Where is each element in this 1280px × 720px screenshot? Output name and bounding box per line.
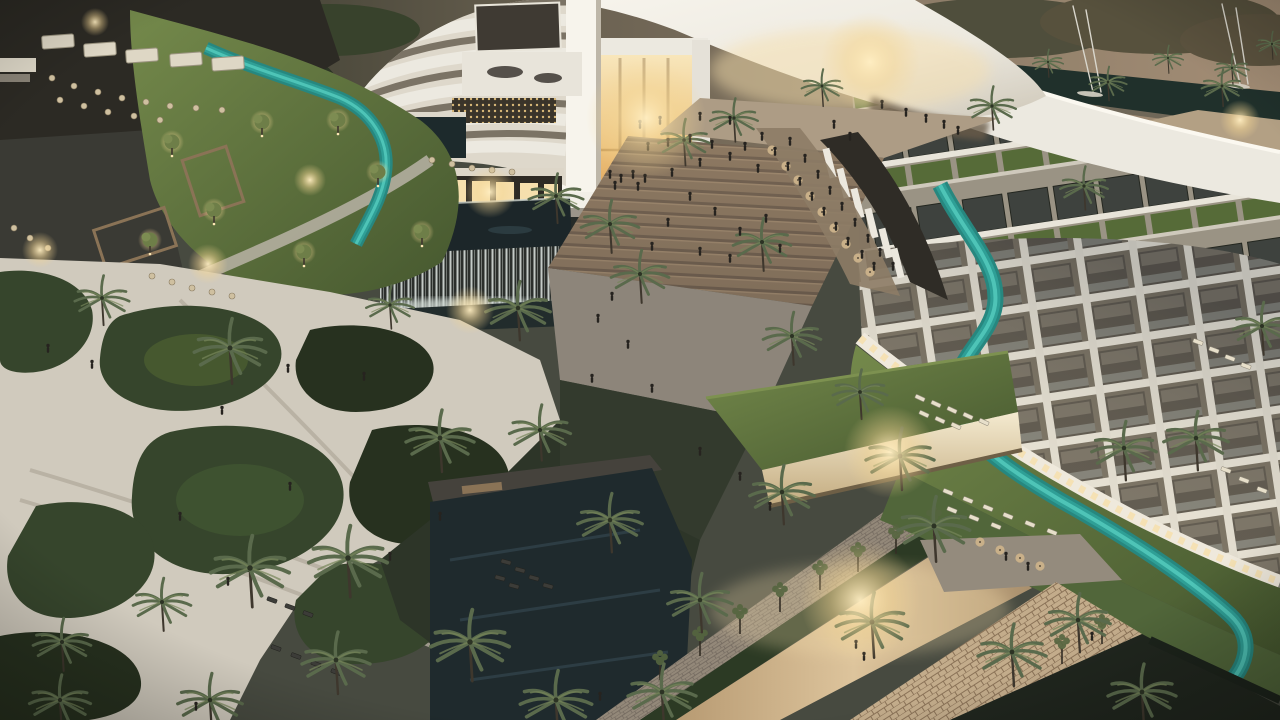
resort-scene (0, 0, 1280, 720)
resort-rendering (0, 0, 1280, 720)
vignette (0, 0, 1280, 720)
